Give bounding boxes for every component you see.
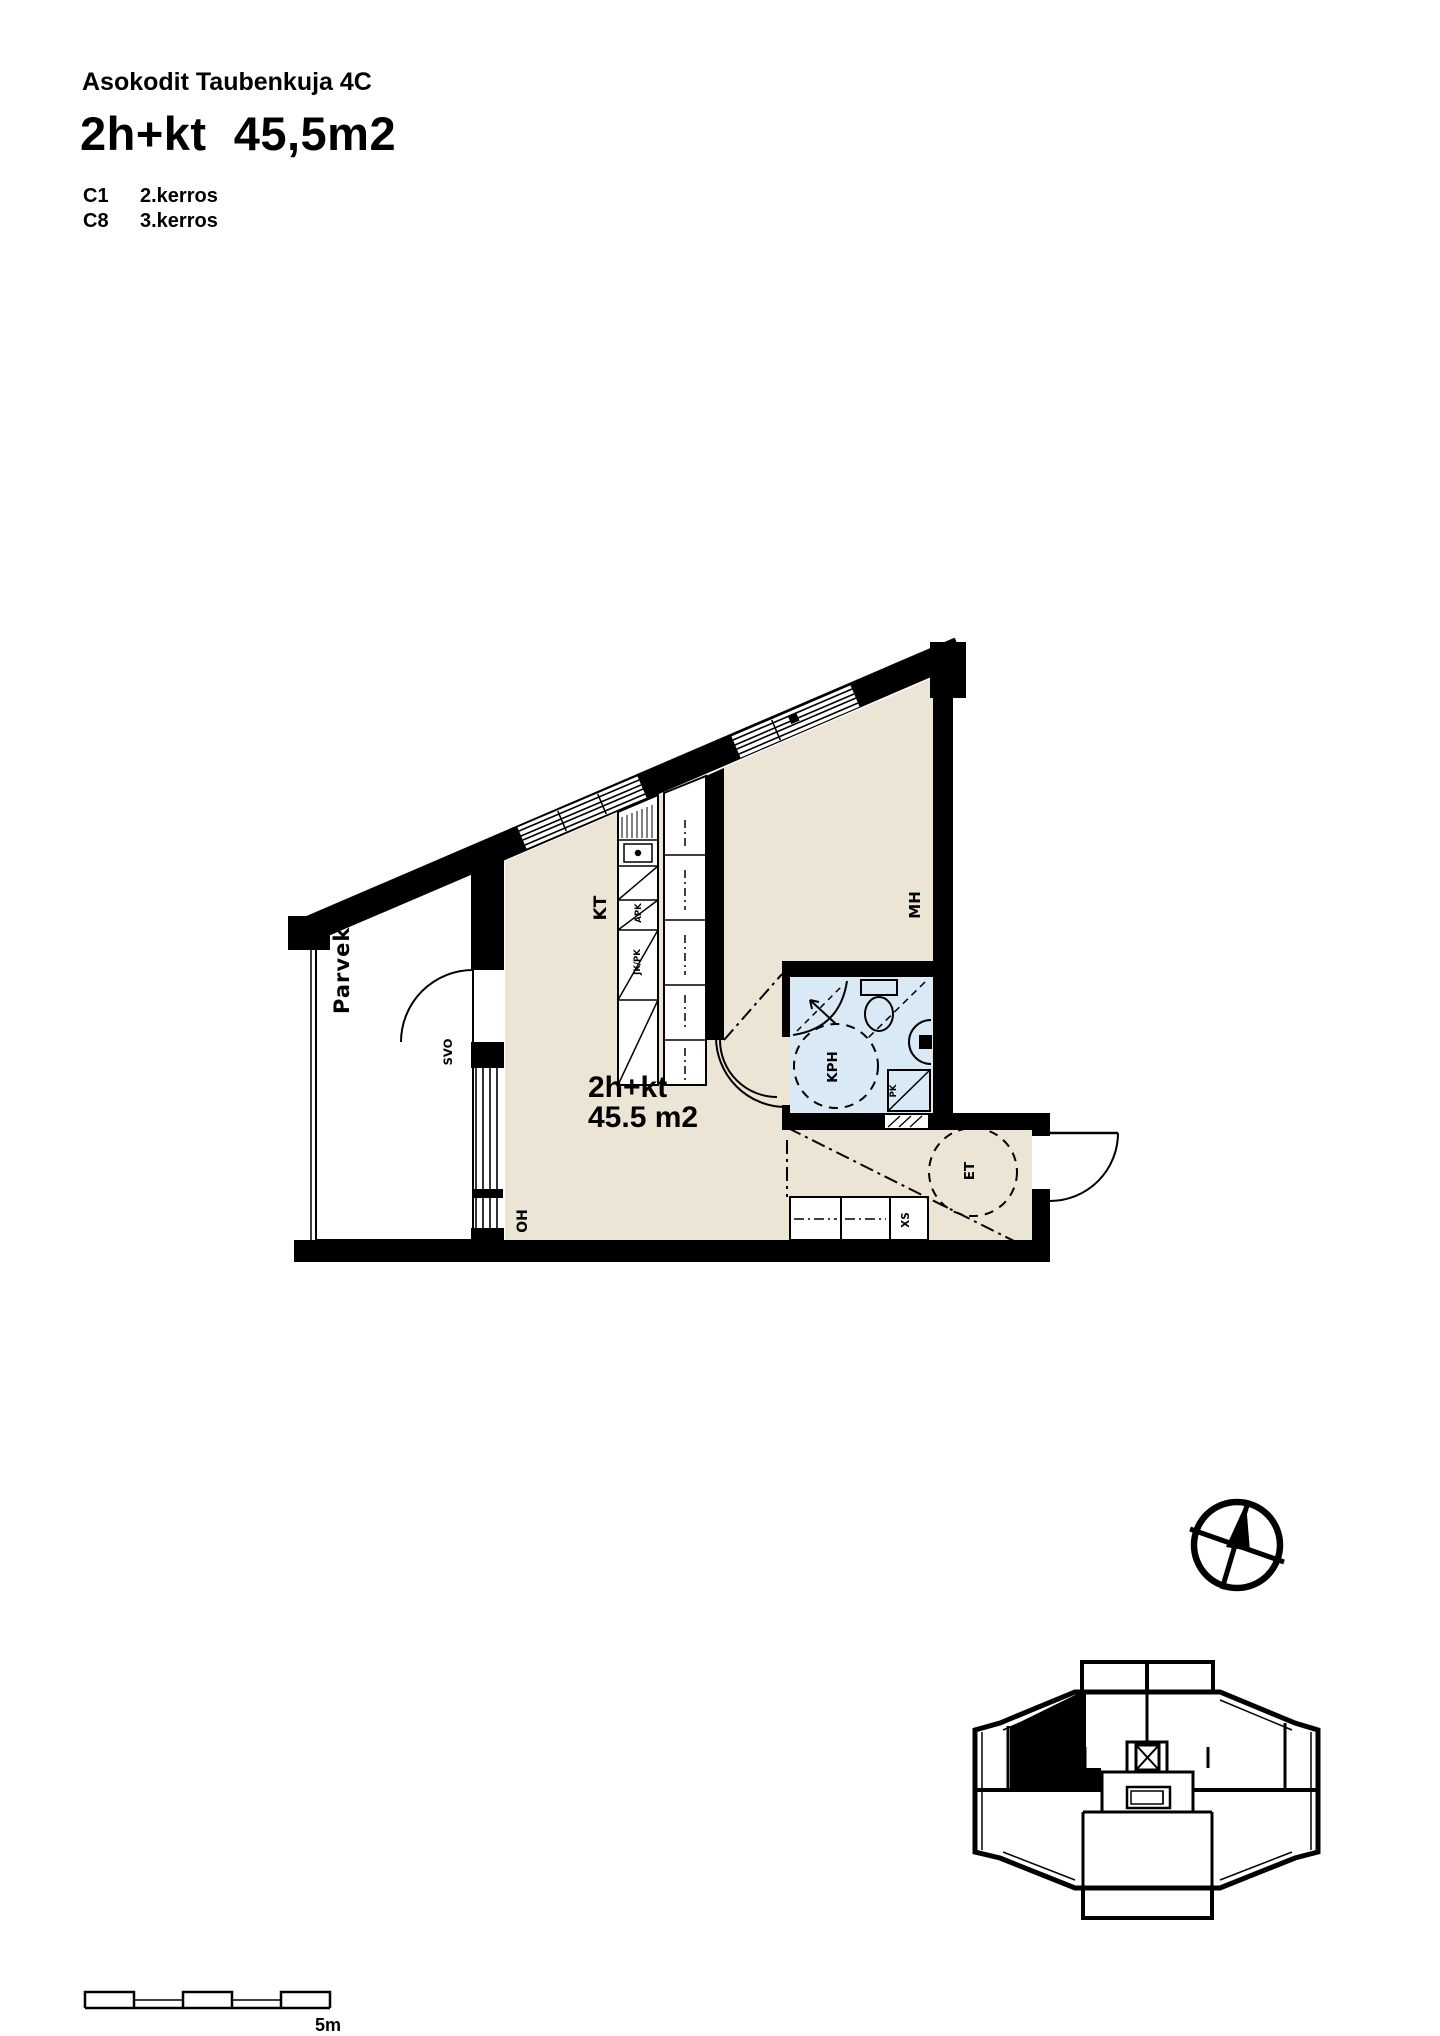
north-needle bbox=[1226, 1503, 1250, 1551]
balcony-door-label: SVO bbox=[441, 1038, 455, 1065]
balcony-label: Parveke bbox=[330, 912, 354, 1014]
entry-label: ET bbox=[962, 1161, 978, 1180]
balcony-window bbox=[474, 1068, 503, 1228]
compass-icon bbox=[1190, 1502, 1284, 1589]
bathroom-label: KPH bbox=[825, 1051, 841, 1083]
apartment-location-highlight bbox=[1010, 1694, 1101, 1790]
entry-floor bbox=[933, 1130, 1032, 1240]
area-label-size: 45.5 m2 bbox=[588, 1101, 698, 1134]
entry-door-arc bbox=[1050, 1133, 1118, 1201]
bedroom-label: MH bbox=[906, 891, 924, 918]
storage-label: XS bbox=[900, 1212, 912, 1228]
bathroom-floor bbox=[790, 977, 932, 1113]
floorplan-drawing: Parveke KT MH KPH ET OH SVO XS APK JK/PK… bbox=[0, 0, 1440, 2036]
kitchen-label: KT bbox=[591, 895, 611, 920]
living-room-label: OH bbox=[515, 1209, 531, 1233]
building-key-plan bbox=[975, 1662, 1318, 1918]
area-label-type: 2h+kt bbox=[588, 1071, 667, 1104]
threshold bbox=[885, 1115, 928, 1128]
floorplan-page: Asokodit Taubenkuja 4C 2h+kt 45,5m2 C1 2… bbox=[0, 0, 1440, 2036]
scale-bar bbox=[85, 1992, 330, 2008]
stairs bbox=[1127, 1787, 1170, 1808]
dishwasher-label: APK bbox=[634, 903, 644, 923]
fridge-label: JK/PK bbox=[633, 949, 643, 976]
washer-label: PK bbox=[889, 1084, 899, 1097]
elevator-shaft bbox=[1136, 1745, 1159, 1770]
scale-bar-label: 5m bbox=[315, 2015, 341, 2035]
